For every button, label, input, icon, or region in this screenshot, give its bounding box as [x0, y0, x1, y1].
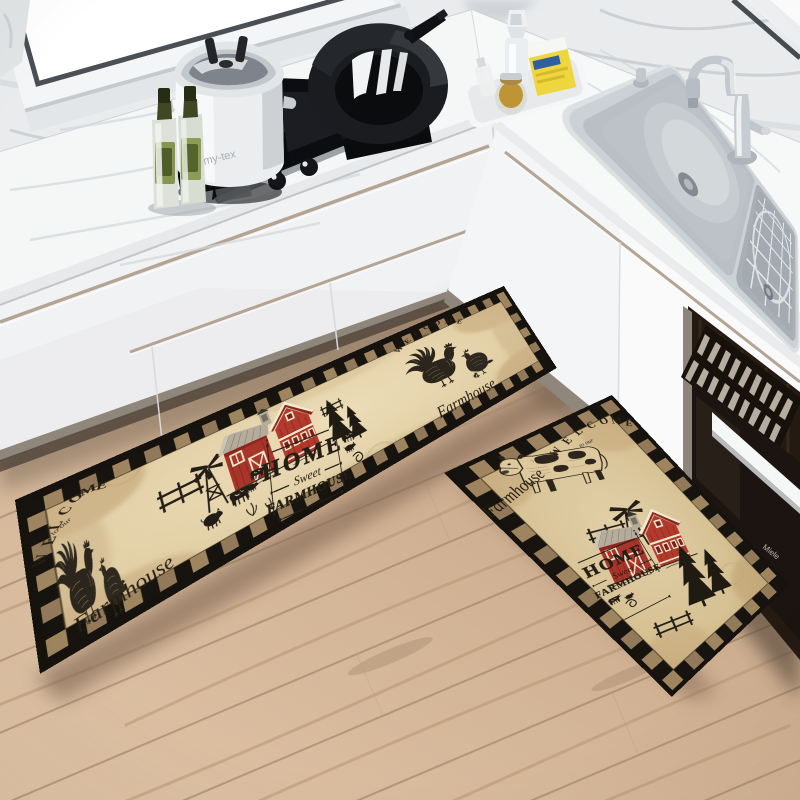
svg-text:E: E: [625, 418, 632, 429]
svg-text:M: M: [445, 317, 454, 325]
